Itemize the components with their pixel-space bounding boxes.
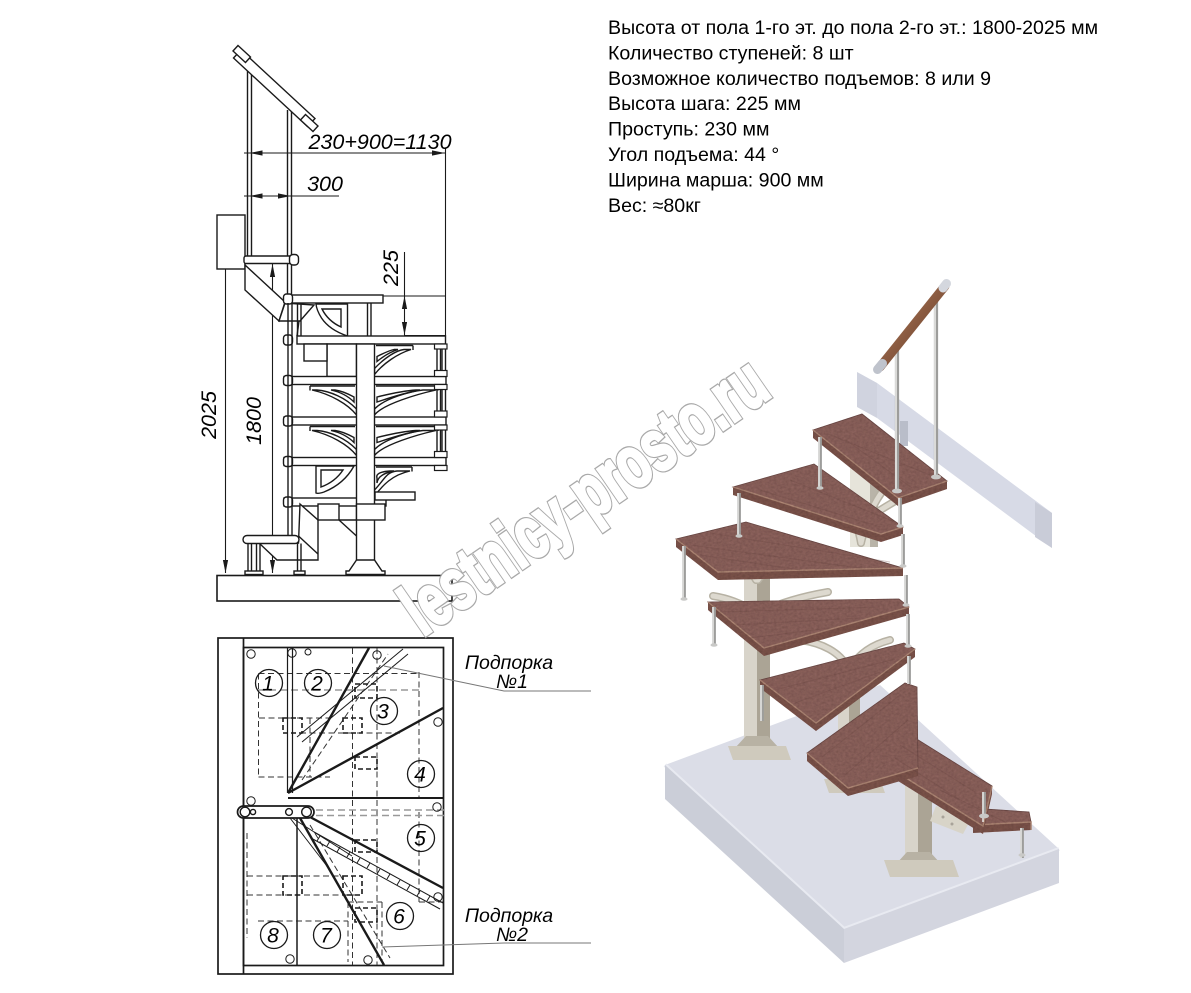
svg-text:Возможное количество подъемов:: Возможное количество подъемов: 8 или 9 <box>608 68 991 90</box>
svg-text:1: 1 <box>262 673 274 696</box>
svg-text:7: 7 <box>320 925 333 948</box>
svg-text:230+900=1130: 230+900=1130 <box>307 130 451 154</box>
svg-text:Ширина марша: 900 мм: Ширина марша: 900 мм <box>608 169 824 191</box>
svg-text:1800: 1800 <box>242 397 266 445</box>
svg-text:5: 5 <box>414 828 426 851</box>
svg-text:Количество ступеней: 8 шт: Количество ступеней: 8 шт <box>608 42 854 64</box>
svg-text:4: 4 <box>414 764 426 787</box>
svg-text:№1: №1 <box>496 671 528 693</box>
svg-text:6: 6 <box>393 906 405 929</box>
svg-text:3: 3 <box>377 701 389 724</box>
svg-text:Высота шага: 225 мм: Высота шага: 225 мм <box>608 93 801 115</box>
svg-text:Проступь: 230 мм: Проступь: 230 мм <box>608 119 769 141</box>
svg-text:300: 300 <box>307 172 343 196</box>
svg-text:2: 2 <box>310 673 323 696</box>
svg-text:225: 225 <box>379 249 403 287</box>
svg-text:8: 8 <box>267 925 279 948</box>
svg-text:Вес: ≈80кг: Вес: ≈80кг <box>608 195 701 217</box>
svg-text:Высота от пола 1-го эт. до пол: Высота от пола 1-го эт. до пола 2-го эт.… <box>608 17 1098 39</box>
svg-text:2025: 2025 <box>197 390 221 440</box>
svg-text:Угол подъема: 44 °: Угол подъема: 44 ° <box>608 144 779 166</box>
